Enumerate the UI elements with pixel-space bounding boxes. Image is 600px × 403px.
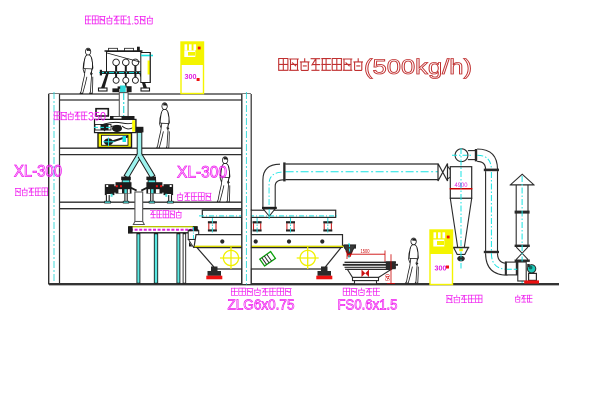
- svg-text:1.5: 1.5: [127, 15, 140, 27]
- svg-text:(500kg/h): (500kg/h): [364, 55, 472, 79]
- svg-text:XL-300: XL-300: [177, 163, 227, 182]
- svg-text:ZLG6x0.75: ZLG6x0.75: [228, 297, 295, 314]
- svg-text:300: 300: [185, 72, 197, 81]
- svg-text:FS0.6x1.5: FS0.6x1.5: [338, 297, 398, 314]
- svg-text:350: 350: [88, 112, 106, 124]
- svg-text:540: 540: [386, 274, 392, 281]
- svg-text:300: 300: [435, 264, 447, 273]
- svg-text:XL-300: XL-300: [14, 162, 62, 181]
- svg-text:1500: 1500: [361, 249, 370, 255]
